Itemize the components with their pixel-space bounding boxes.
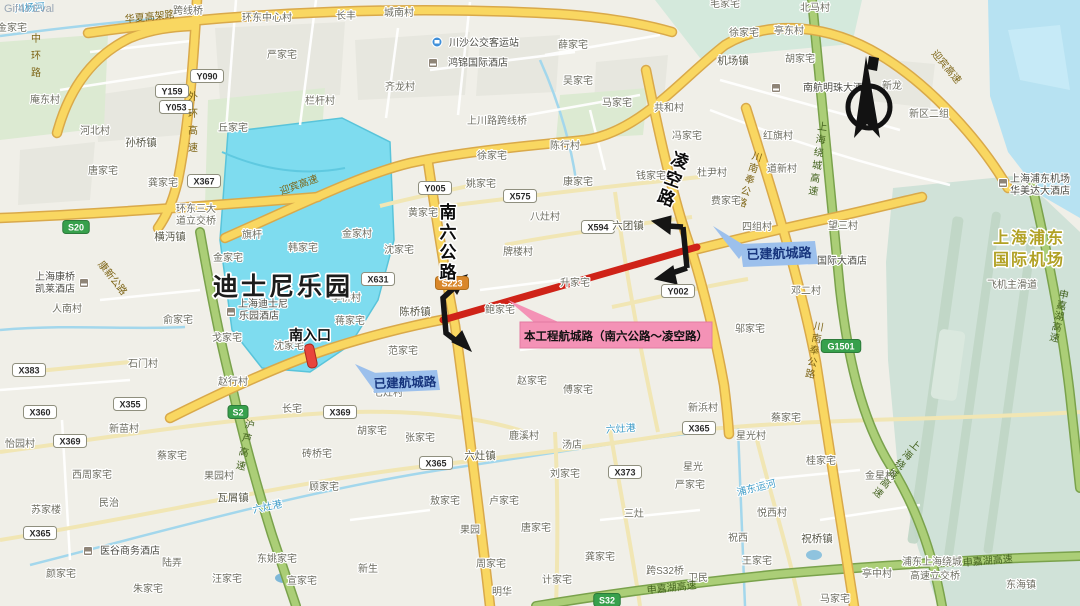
- map-label: 计家宅: [542, 573, 572, 586]
- svg-text:Y090: Y090: [196, 72, 217, 82]
- map-label: 长丰: [336, 9, 356, 22]
- map-label: 栏杆村: [305, 94, 335, 107]
- hotel-icon: [84, 547, 93, 556]
- svg-text:S2: S2: [232, 408, 243, 418]
- svg-text:G1501: G1501: [827, 342, 854, 352]
- svg-text:X355: X355: [119, 400, 140, 410]
- road-badge: Y002: [662, 285, 695, 298]
- svg-text:X365: X365: [29, 529, 50, 539]
- map-label: 金家宅: [213, 251, 243, 264]
- map-label: 敖家宅: [430, 494, 460, 507]
- project-road-callout-label: 本工程航城路（南六公路～凌空路）: [524, 329, 708, 343]
- map-label: 薛家宅: [558, 38, 588, 51]
- map-label: 牌楼村: [503, 245, 533, 258]
- map-label: 亭东村: [774, 24, 804, 37]
- map-label: 徐家宅: [729, 26, 759, 39]
- map-label: 唐家宅: [88, 164, 118, 177]
- map-label: 祝西: [728, 531, 748, 544]
- road-badge: X365: [420, 457, 453, 470]
- svg-text:X373: X373: [614, 468, 635, 478]
- map-label: 韩家宅: [288, 241, 318, 254]
- map-label: 金家宅: [0, 21, 27, 34]
- map-label: 果园村: [204, 469, 234, 482]
- map-label: 朱家宅: [133, 582, 163, 595]
- map-label: 中环路: [31, 32, 41, 79]
- svg-text:X575: X575: [509, 192, 530, 202]
- map-label: 胡家宅: [357, 424, 387, 437]
- map-label: 上海迪士尼: [238, 297, 288, 310]
- road-badge: S2: [228, 406, 248, 419]
- map-label: 颜家宅: [46, 567, 76, 580]
- map-label: 跨线桥: [173, 4, 203, 17]
- map-label: 道立交桥: [176, 214, 216, 227]
- road-badge: X575: [504, 190, 537, 203]
- map-label: 陈桥镇: [399, 305, 431, 318]
- map-label: 傅家宅: [563, 383, 593, 396]
- road-badge: G1501: [821, 340, 861, 353]
- map-label: 苏家楼: [31, 503, 61, 516]
- map-label: 共和村: [654, 101, 684, 114]
- map-label: 周家宅: [476, 557, 506, 570]
- road-badge: X383: [13, 364, 46, 377]
- map-label: 上海康桥: [35, 270, 75, 283]
- map-label: 旗杆: [242, 228, 262, 241]
- map-label: 六灶镇: [464, 449, 496, 462]
- built-road-callout-west-label: 已建航城路: [373, 374, 436, 391]
- map-label: 杜尹村: [697, 166, 727, 179]
- map-label: 祝桥镇: [801, 532, 833, 545]
- map-label: 陆弄: [162, 556, 182, 569]
- map-label: 赵行村: [218, 375, 248, 388]
- map-label: 道新村: [767, 162, 797, 175]
- road-badge: S20: [63, 221, 90, 234]
- map-label: 康家宅: [563, 175, 593, 188]
- map-label: 明华: [492, 585, 512, 598]
- map-label: 姚家宅: [466, 177, 496, 190]
- map-label: 飞机主滑道: [987, 278, 1037, 291]
- svg-text:X369: X369: [59, 437, 80, 447]
- map-label: 人南村: [52, 302, 82, 315]
- map-label: 机场镇: [717, 54, 749, 67]
- map-label: 金家村: [342, 227, 372, 240]
- map-label: 环东三大: [176, 202, 216, 215]
- map-label: 鸿锦国际酒店: [448, 56, 508, 69]
- map-label: 俞家宅: [163, 313, 193, 326]
- svg-text:Y002: Y002: [667, 287, 688, 297]
- map-label: 北马村: [800, 1, 830, 14]
- map-label: 望三村: [828, 219, 858, 232]
- built-road-callout-east-label: 已建航城路: [746, 245, 812, 262]
- map-label: 上海浦东机场: [1010, 172, 1070, 185]
- map-label: 果园: [460, 524, 480, 536]
- watermark: Gif4J Eval: [4, 3, 54, 15]
- map-label: 上川路跨线桥: [467, 114, 527, 127]
- map-label: 亭中村: [862, 567, 892, 580]
- map-label: 徐家宅: [477, 149, 507, 162]
- map-label: 国际大酒店: [817, 254, 867, 267]
- map-label: 乐园酒店: [239, 309, 279, 322]
- road-badge: X365: [24, 527, 57, 540]
- road-badge: X631: [362, 273, 395, 286]
- map-label: 黄家宅: [408, 206, 438, 219]
- map-label: 齐龙村: [385, 80, 415, 93]
- map-label: 卢家宅: [489, 494, 519, 507]
- bus-station-icon: [432, 37, 442, 47]
- map-label: 沈家宅: [384, 243, 414, 256]
- svg-text:X360: X360: [29, 408, 50, 418]
- road-badge: X355: [114, 398, 147, 411]
- hotel-icon: [80, 279, 89, 288]
- road-badge: X369: [54, 435, 87, 448]
- map-label: 马家宅: [820, 592, 850, 605]
- svg-text:X369: X369: [329, 408, 350, 418]
- map-label: 钱家宅: [636, 169, 666, 182]
- map-label: 陈行村: [550, 139, 580, 152]
- road-badge: X594: [582, 221, 615, 234]
- hotel-icon: [227, 308, 236, 317]
- hotel-icon: [999, 179, 1008, 188]
- map-canvas[interactable]: Y090Y159Y053X367Y005X575X631X594Y002X383…: [0, 0, 1080, 606]
- map-label: 浦东上海绕城: [902, 555, 962, 568]
- map-label: 南入口: [289, 327, 331, 343]
- map-label: 汤店: [562, 438, 582, 451]
- road-badge: X373: [609, 466, 642, 479]
- svg-text:S20: S20: [68, 223, 84, 233]
- svg-text:X594: X594: [587, 223, 608, 233]
- svg-text:Y005: Y005: [424, 184, 445, 194]
- map-label: 王家宅: [742, 554, 772, 567]
- road-badge: X365: [683, 422, 716, 435]
- map-label: 横沔镇: [154, 230, 186, 243]
- hotel-icon: [772, 84, 781, 93]
- map-label: 环东中心村: [242, 11, 292, 24]
- map-label: 龚家宅: [585, 550, 615, 563]
- map-label: 星光村: [736, 429, 766, 442]
- map-label: 鹿溪村: [509, 429, 539, 442]
- map-label: 东海镇: [1006, 578, 1036, 591]
- map-label: 国际机场: [993, 250, 1065, 269]
- map-label: 宣家宅: [287, 574, 317, 587]
- map-label: 红旗村: [763, 129, 793, 142]
- map-label: 张家宅: [405, 431, 435, 444]
- map-label: 范家宅: [388, 344, 418, 357]
- map-label: 孙桥镇: [125, 136, 157, 149]
- map-label: 迪士尼乐园: [213, 273, 353, 301]
- map-label: 邓二村: [791, 284, 821, 297]
- map-label: 严家宅: [675, 478, 705, 491]
- map-label: 蔡家宅: [771, 411, 801, 424]
- map-label: 悦西村: [757, 506, 787, 519]
- map-label: 跨S32桥: [646, 565, 684, 577]
- map-label: 邬家宅: [735, 322, 765, 335]
- svg-text:S32: S32: [599, 596, 615, 606]
- map-label: 马家宅: [602, 96, 632, 109]
- map-label: 桂家宅: [806, 454, 836, 467]
- hotel-icon: [429, 59, 438, 68]
- road-badge: X369: [324, 406, 357, 419]
- map-label: 戈家宅: [212, 331, 242, 344]
- svg-text:X367: X367: [193, 177, 214, 187]
- map-label: 民治: [99, 496, 119, 509]
- map-label: 汪家宅: [212, 572, 242, 585]
- map-label: 赵家宅: [517, 374, 547, 387]
- map-label: 星光: [683, 460, 703, 473]
- map-label: 八灶村: [530, 210, 560, 223]
- map-label: 石门村: [128, 357, 158, 370]
- map-label: 冯家宅: [672, 129, 702, 142]
- svg-text:X365: X365: [688, 424, 709, 434]
- map-label: 瓦屑镇: [217, 491, 249, 504]
- map-screenshot: Y090Y159Y053X367Y005X575X631X594Y002X383…: [0, 0, 1080, 606]
- map-label: 东姚家宅: [257, 552, 297, 565]
- road-badge: X367: [188, 175, 221, 188]
- road-badge: Y090: [191, 70, 224, 83]
- map-label: 唐家宅: [521, 521, 551, 534]
- map-label: 高速立交桥: [910, 569, 960, 582]
- map-label: 蒋家宅: [335, 314, 365, 327]
- map-label: 凯莱酒店: [35, 282, 75, 295]
- map-label: 上海浦东: [993, 228, 1065, 247]
- svg-text:X631: X631: [367, 275, 388, 285]
- map-label: 川沙公交客运站: [449, 36, 519, 49]
- road-badge: S32: [594, 594, 621, 606]
- map-label: 怡园村: [5, 437, 35, 450]
- svg-text:Y159: Y159: [161, 87, 182, 97]
- map-label: 新生: [358, 562, 378, 575]
- map-label: 丘家宅: [218, 121, 248, 134]
- map-label: 四组村: [742, 220, 772, 233]
- map-label: 升家宅: [560, 276, 590, 289]
- map-label: 三灶: [624, 507, 644, 520]
- map-label: 医谷商务酒店: [100, 544, 160, 557]
- map-label: 长宅: [282, 402, 302, 415]
- road-badge: Y005: [419, 182, 452, 195]
- map-label: 费家宅: [711, 194, 741, 207]
- map-label: 吴家宅: [563, 74, 593, 87]
- map-label: 西周家宅: [72, 468, 112, 481]
- map-label: 刘家宅: [550, 467, 580, 480]
- pond: [806, 550, 822, 560]
- svg-text:X365: X365: [425, 459, 446, 469]
- map-label: 蔡家宅: [157, 449, 187, 462]
- map-label: 胡家宅: [785, 52, 815, 65]
- map-label: 河北村: [80, 124, 110, 137]
- map-label: 新浜村: [688, 401, 718, 414]
- map-label: 华美达大酒店: [1010, 184, 1070, 197]
- map-label: 城南村: [384, 6, 414, 19]
- map-label: 毛家宅: [710, 0, 740, 10]
- map-label: 顾家宅: [309, 480, 339, 493]
- map-label: 新苗村: [109, 422, 139, 435]
- map-label: 砖桥宅: [302, 447, 332, 460]
- map-label: 鲍家宅: [485, 303, 515, 316]
- road-badge: Y159: [156, 85, 189, 98]
- map-label: 新区二组: [909, 107, 949, 120]
- map-label: 六团镇: [612, 219, 644, 232]
- map-label: 龚家宅: [148, 176, 178, 189]
- map-label: 庵东村: [30, 93, 60, 106]
- map-label: 严家宅: [267, 48, 297, 61]
- svg-text:X383: X383: [18, 366, 39, 376]
- svg-text:Y053: Y053: [165, 103, 186, 113]
- road-badge: X360: [24, 406, 57, 419]
